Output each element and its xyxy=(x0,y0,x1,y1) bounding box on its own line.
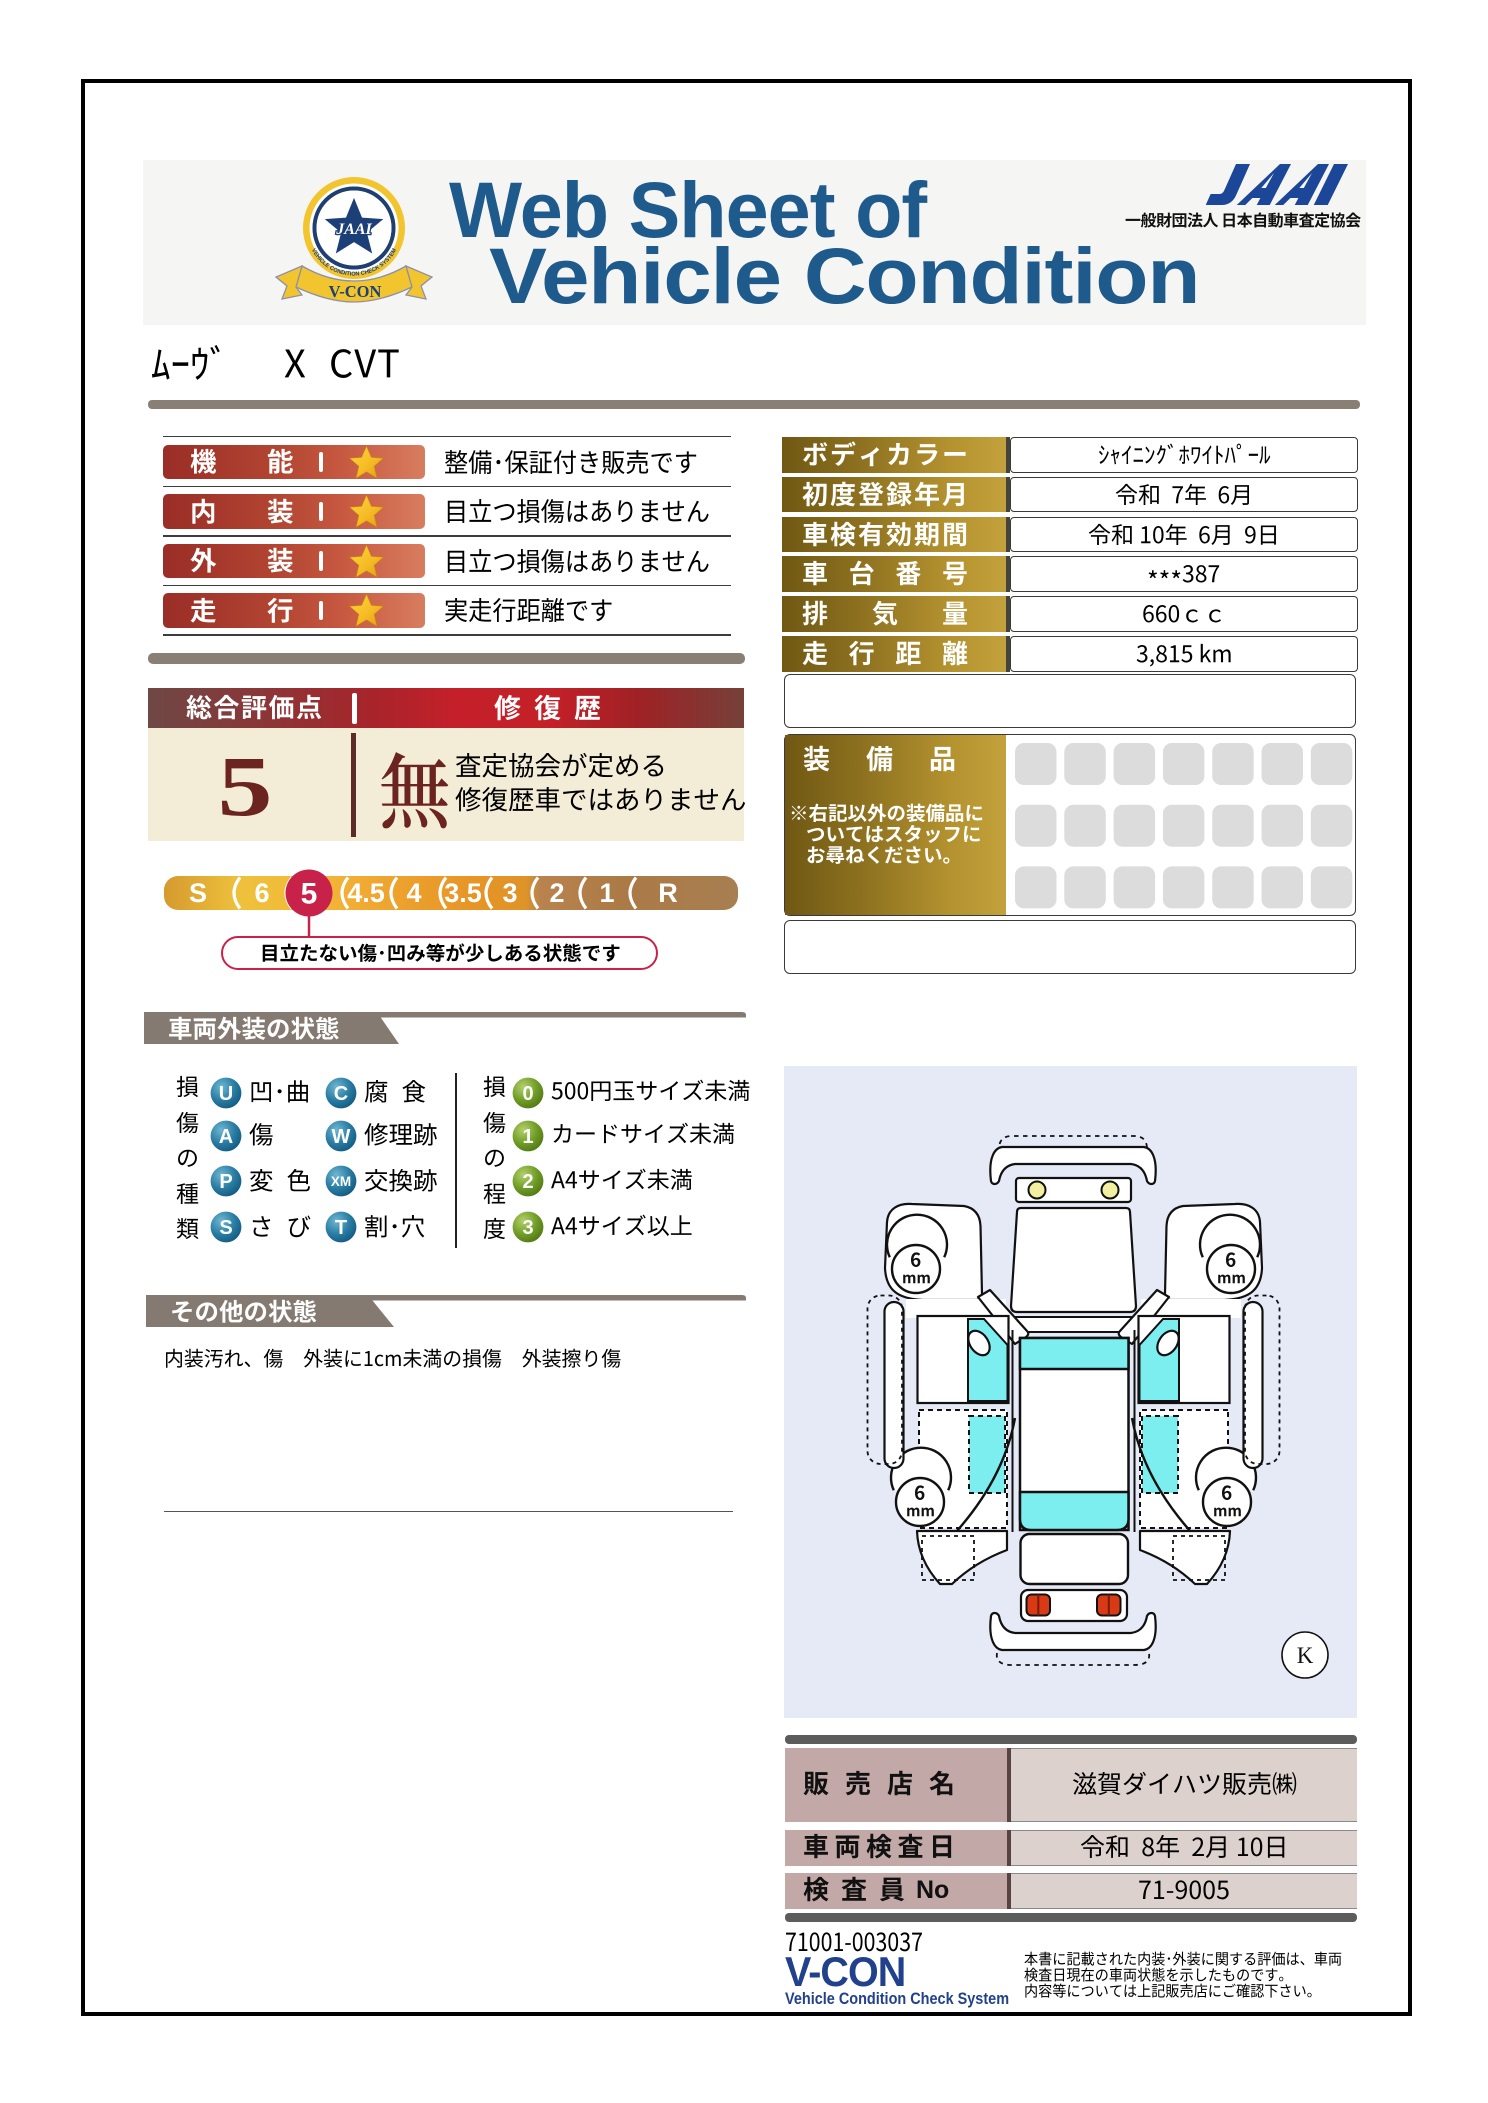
svg-text:2: 2 xyxy=(522,1171,533,1193)
svg-text:4.5: 4.5 xyxy=(347,878,385,908)
svg-text:4: 4 xyxy=(406,878,421,908)
svg-text:1: 1 xyxy=(522,1126,533,1148)
svg-text:3: 3 xyxy=(502,878,517,908)
svg-text:1: 1 xyxy=(599,878,614,908)
svg-text:A: A xyxy=(218,1126,232,1148)
svg-text:3: 3 xyxy=(522,1217,533,1239)
svg-text:K: K xyxy=(1297,1643,1314,1668)
svg-text:3.5: 3.5 xyxy=(444,878,482,908)
svg-text:V-CON: V-CON xyxy=(329,282,382,301)
svg-text:5: 5 xyxy=(301,878,318,911)
svg-text:JAAI: JAAI xyxy=(335,221,372,238)
svg-text:W: W xyxy=(331,1126,350,1148)
svg-text:6: 6 xyxy=(254,878,269,908)
svg-text:T: T xyxy=(334,1217,346,1239)
svg-text:S: S xyxy=(219,1217,232,1239)
svg-text:R: R xyxy=(658,878,678,908)
svg-text:U: U xyxy=(218,1083,232,1105)
svg-text:P: P xyxy=(219,1171,232,1193)
svg-text:S: S xyxy=(189,878,207,908)
svg-text:0: 0 xyxy=(522,1083,533,1105)
svg-text:2: 2 xyxy=(549,878,564,908)
svg-text:XM: XM xyxy=(330,1174,350,1189)
svg-text:C: C xyxy=(333,1083,347,1105)
